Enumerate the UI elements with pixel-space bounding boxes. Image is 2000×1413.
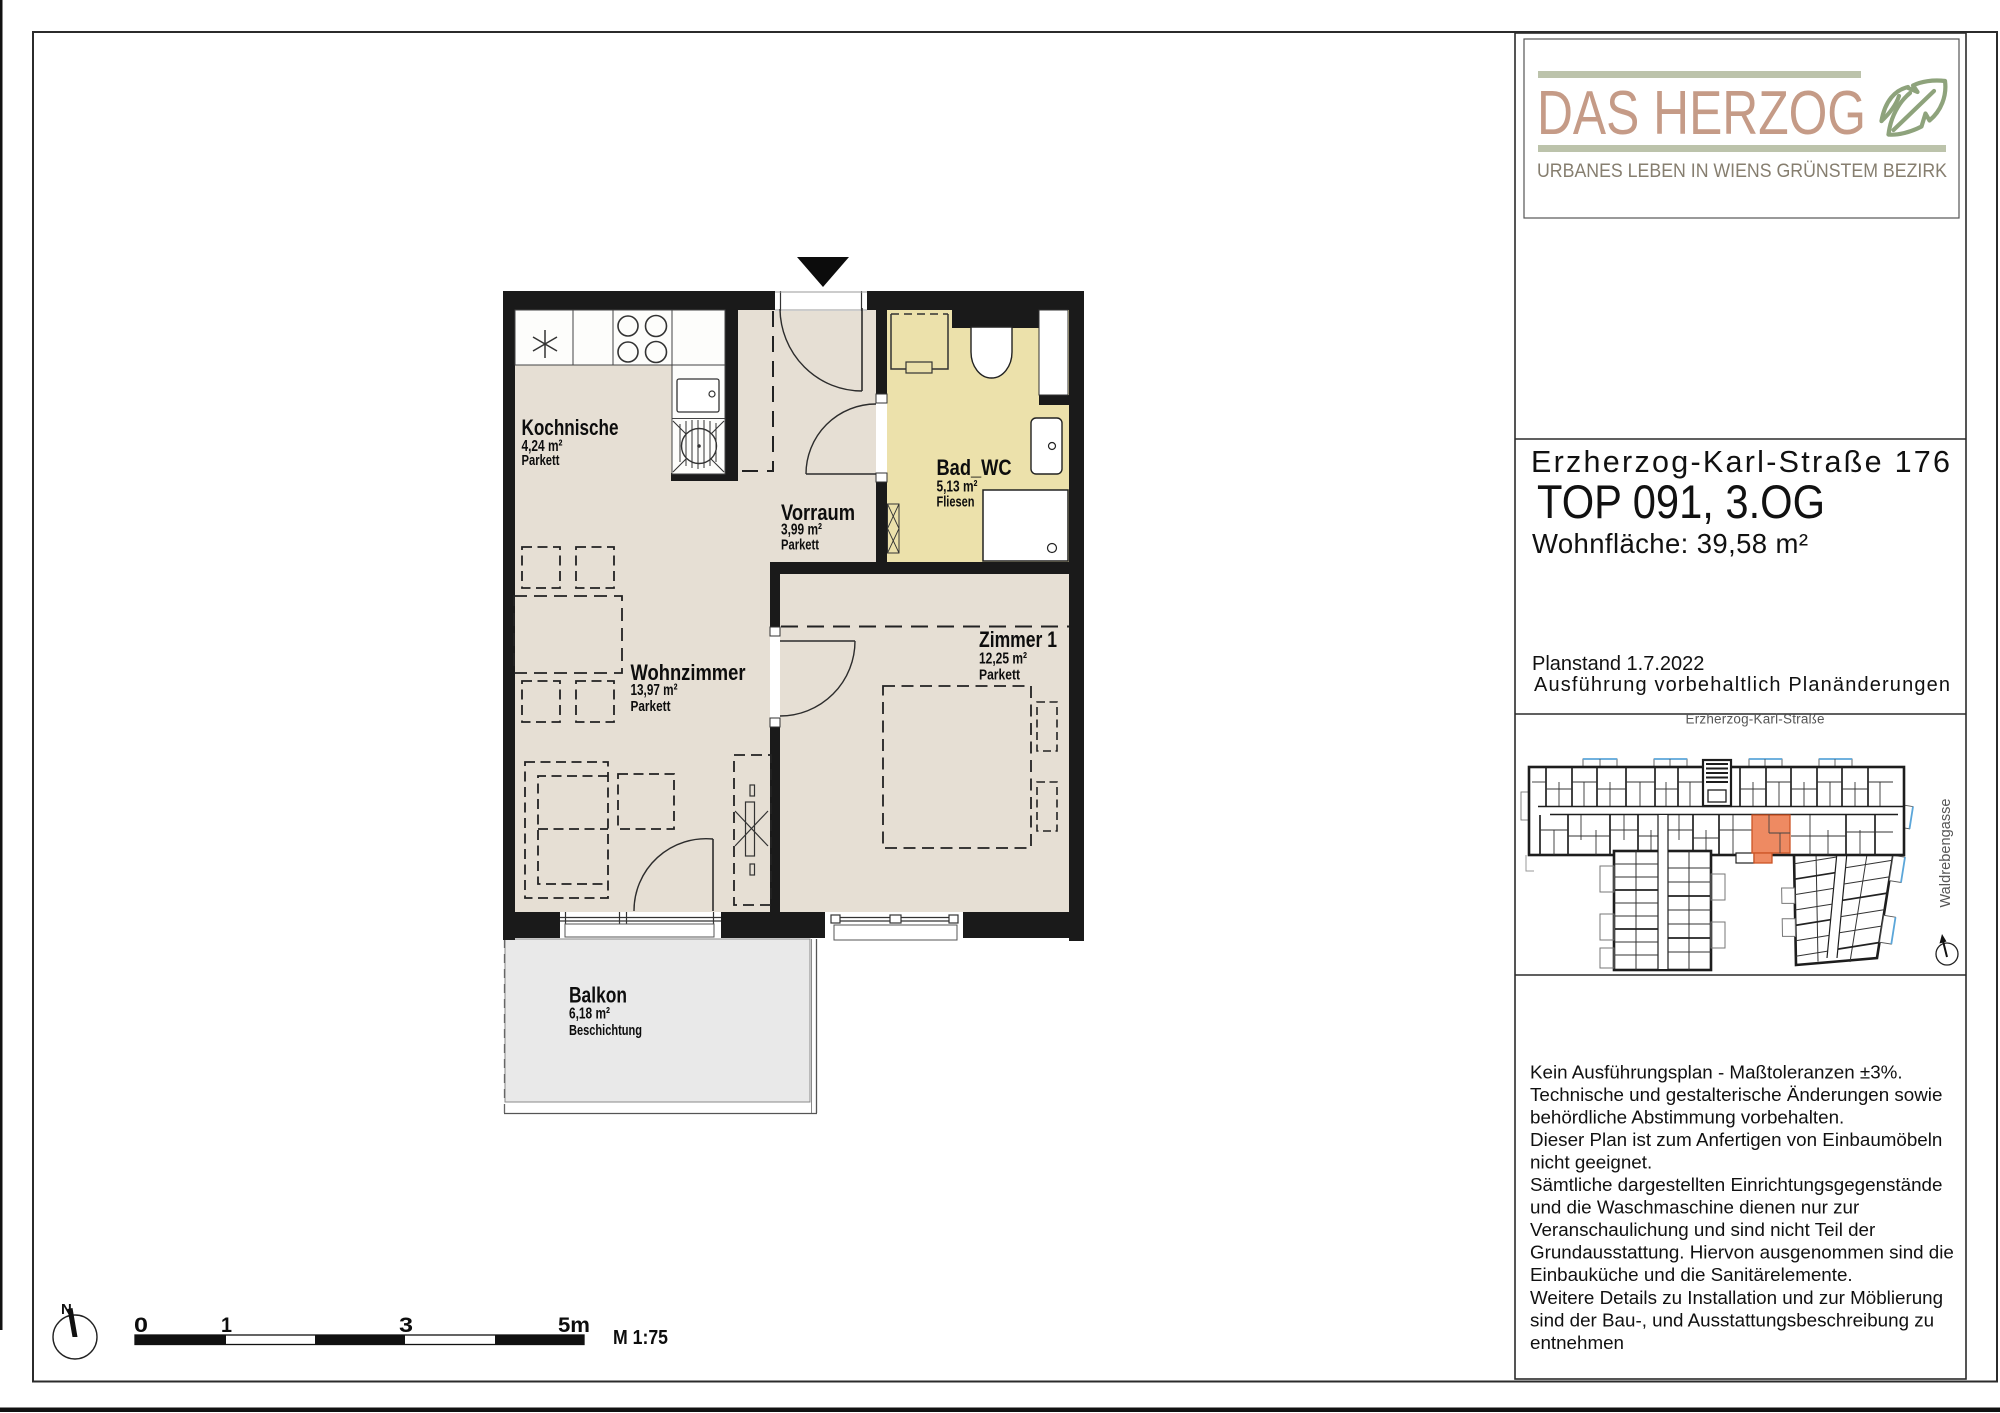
svg-text:Ausführung vorbehaltlich Planä: Ausführung vorbehaltlich Planänderungen (1534, 674, 1950, 696)
svg-text:Planstand 1.7.2022: Planstand 1.7.2022 (1532, 653, 1704, 675)
svg-text:12,25 m²: 12,25 m² (979, 651, 1027, 668)
svg-text:nicht geeignet.: nicht geeignet. (1530, 1152, 1652, 1173)
svg-text:0: 0 (134, 1314, 148, 1337)
svg-text:M 1:75: M 1:75 (613, 1327, 668, 1349)
svg-text:Erzherzog-Karl-Straße 176: Erzherzog-Karl-Straße 176 (1531, 445, 1950, 479)
svg-text:13,97 m²: 13,97 m² (631, 682, 678, 699)
svg-text:Veranschaulichung und sind nic: Veranschaulichung und sind nicht Teil de… (1530, 1219, 1875, 1240)
svg-text:Kochnische: Kochnische (522, 415, 619, 440)
svg-text:5,13 m²: 5,13 m² (937, 479, 978, 496)
svg-text:Sämtliche dargestellten Einric: Sämtliche dargestellten Einrichtungsgege… (1530, 1174, 1942, 1195)
svg-text:3,99 m²: 3,99 m² (781, 522, 822, 539)
svg-text:Zimmer 1: Zimmer 1 (979, 627, 1057, 652)
svg-text:Wohnfläche: 39,58 m²: Wohnfläche: 39,58 m² (1532, 528, 1808, 559)
svg-text:Fliesen: Fliesen (937, 495, 975, 511)
svg-text:entnehmen: entnehmen (1530, 1332, 1624, 1353)
svg-text:Einbauküche und die Sanitärele: Einbauküche und die Sanitärelemente. (1530, 1264, 1853, 1285)
svg-text:DAS HERZOG: DAS HERZOG (1537, 79, 1866, 148)
svg-text:Technische und gestalterische: Technische und gestalterische Änderungen… (1530, 1084, 1942, 1105)
svg-text:TOP 091, 3.OG: TOP 091, 3.OG (1537, 475, 1825, 528)
svg-text:1: 1 (221, 1314, 232, 1337)
svg-text:Parkett: Parkett (522, 453, 560, 469)
svg-text:Weitere Details zu Installatio: Weitere Details zu Installation und zur … (1530, 1287, 1943, 1308)
svg-text:Erzherzog-Karl-Straße: Erzherzog-Karl-Straße (1686, 712, 1825, 727)
svg-text:Grundausstattung. Hiervon ausg: Grundausstattung. Hiervon ausgenommen si… (1530, 1242, 1954, 1263)
svg-text:Dieser Plan ist zum Anfertigen: Dieser Plan ist zum Anfertigen von Einba… (1530, 1129, 1942, 1150)
svg-text:behördliche Abstimmung vorbeha: behördliche Abstimmung vorbehalten. (1530, 1106, 1844, 1127)
svg-text:Waldrebengasse: Waldrebengasse (1938, 799, 1954, 908)
svg-text:5m: 5m (558, 1314, 590, 1337)
svg-text:Beschichtung: Beschichtung (569, 1023, 642, 1039)
svg-text:Balkon: Balkon (569, 983, 627, 1008)
svg-text:sind der Bau-, und Ausstattung: sind der Bau-, und Ausstattungsbeschreib… (1530, 1309, 1934, 1330)
svg-text:und die Waschmaschine dienen n: und die Waschmaschine dienen nur zur (1530, 1197, 1859, 1218)
svg-text:Kein Ausführungsplan - Maßtole: Kein Ausführungsplan - Maßtoleranzen ±3%… (1530, 1061, 1903, 1082)
svg-text:3: 3 (399, 1314, 413, 1337)
svg-text:6,18 m²: 6,18 m² (569, 1006, 610, 1023)
svg-text:URBANES LEBEN IN WIENS GRÜNSTE: URBANES LEBEN IN WIENS GRÜNSTEM BEZIRK (1537, 160, 1947, 182)
svg-text:Parkett: Parkett (781, 538, 819, 554)
svg-text:Parkett: Parkett (979, 668, 1020, 684)
svg-text:N: N (61, 1301, 72, 1318)
svg-text:Parkett: Parkett (631, 699, 671, 715)
svg-text:Bad_WC: Bad_WC (937, 455, 1012, 480)
